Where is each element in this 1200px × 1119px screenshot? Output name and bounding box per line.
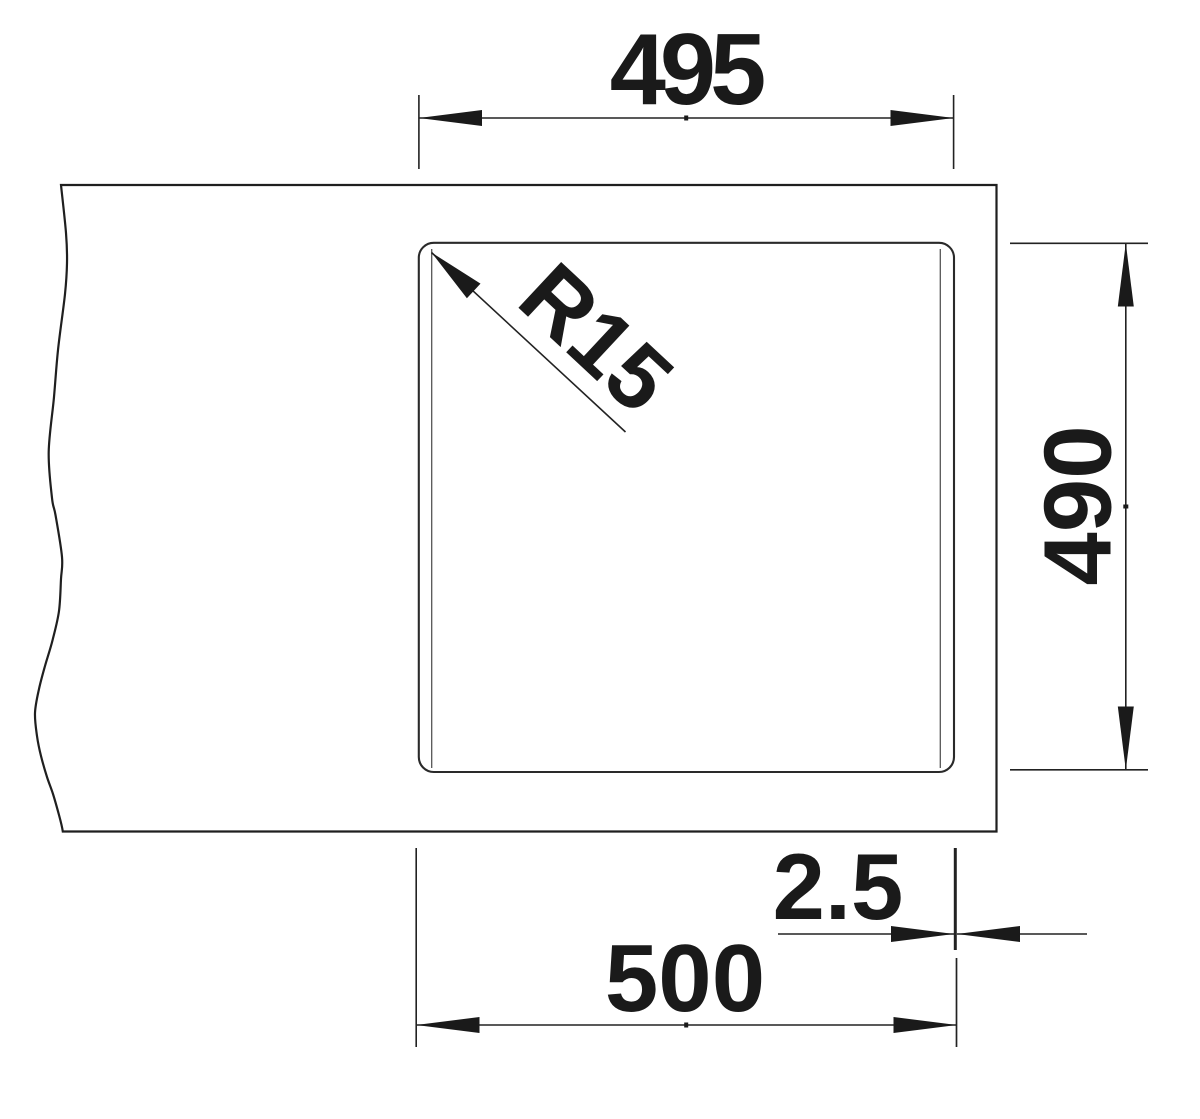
svg-text:500: 500 [605,925,765,1032]
svg-text:2.5: 2.5 [773,834,904,939]
svg-text:R15: R15 [500,244,691,432]
svg-text:490: 490 [1025,425,1132,585]
svg-text:495: 495 [610,14,764,126]
